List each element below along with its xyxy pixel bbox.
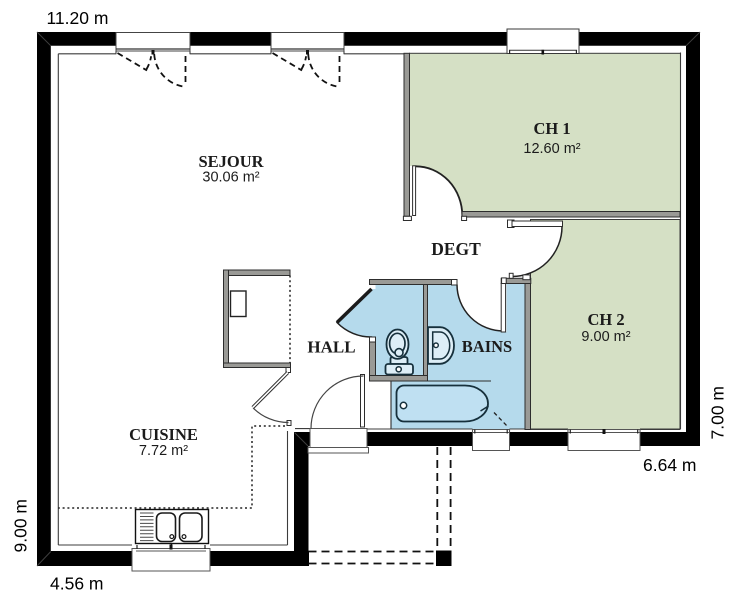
svg-text:30.06 m²: 30.06 m² (202, 170, 259, 186)
svg-text:7.72 m²: 7.72 m² (139, 443, 188, 459)
svg-text:CH 1: CH 1 (533, 119, 570, 138)
svg-text:CUISINE: CUISINE (129, 425, 198, 444)
svg-text:11.20 m: 11.20 m (47, 8, 109, 28)
svg-text:7.00 m: 7.00 m (708, 386, 728, 440)
svg-text:SEJOUR: SEJOUR (198, 152, 264, 171)
svg-text:HALL: HALL (307, 338, 355, 357)
svg-text:9.00 m²: 9.00 m² (581, 329, 630, 345)
svg-text:12.60 m²: 12.60 m² (523, 141, 580, 157)
svg-text:4.56 m: 4.56 m (50, 574, 104, 594)
svg-text:DEGT: DEGT (431, 239, 481, 259)
svg-text:BAINS: BAINS (462, 337, 512, 356)
svg-text:9.00 m: 9.00 m (11, 499, 31, 553)
svg-text:CH 2: CH 2 (587, 310, 624, 329)
svg-text:6.64 m: 6.64 m (643, 455, 697, 475)
